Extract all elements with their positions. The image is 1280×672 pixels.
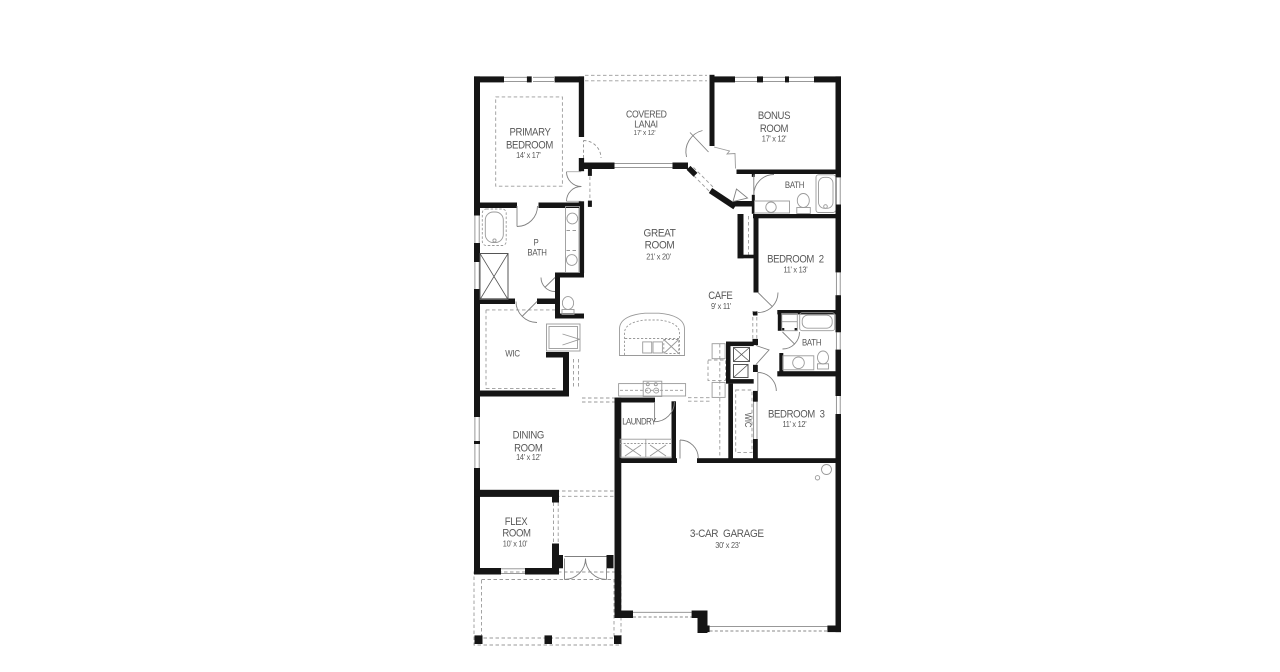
svg-text:14' x 12': 14' x 12' bbox=[516, 453, 541, 462]
svg-text:21' x 20': 21' x 20' bbox=[646, 252, 671, 261]
svg-text:WIC: WIC bbox=[743, 413, 754, 428]
svg-text:BATH: BATH bbox=[802, 337, 821, 348]
svg-text:17' x 12': 17' x 12' bbox=[634, 130, 656, 137]
svg-text:11' x 12': 11' x 12' bbox=[782, 420, 807, 429]
svg-text:BEDROOM 2: BEDROOM 2 bbox=[767, 254, 824, 266]
svg-text:9' x 11': 9' x 11' bbox=[711, 302, 732, 311]
svg-text:3-CAR GARAGE: 3-CAR GARAGE bbox=[690, 527, 764, 540]
svg-text:PRIMARY: PRIMARY bbox=[510, 127, 551, 139]
svg-text:WIC: WIC bbox=[505, 348, 520, 359]
svg-text:LAUNDRY: LAUNDRY bbox=[622, 416, 656, 427]
svg-text:30' x 23': 30' x 23' bbox=[715, 541, 740, 550]
svg-text:BONUS: BONUS bbox=[758, 110, 791, 122]
svg-text:LANAI: LANAI bbox=[634, 119, 657, 130]
svg-text:11' x 13': 11' x 13' bbox=[783, 265, 808, 274]
svg-text:BATH: BATH bbox=[527, 247, 546, 258]
svg-text:ROOM: ROOM bbox=[502, 528, 530, 540]
svg-text:ROOM: ROOM bbox=[645, 239, 675, 252]
svg-text:17' x 12': 17' x 12' bbox=[762, 134, 787, 143]
svg-text:GREAT: GREAT bbox=[644, 227, 677, 240]
svg-text:DINING: DINING bbox=[513, 430, 545, 442]
svg-text:CAFE: CAFE bbox=[708, 290, 733, 302]
svg-text:14' x 17': 14' x 17' bbox=[516, 151, 541, 160]
svg-text:10' x 10': 10' x 10' bbox=[503, 539, 528, 548]
svg-text:FLEX: FLEX bbox=[505, 516, 528, 528]
svg-text:BATH: BATH bbox=[785, 179, 804, 190]
